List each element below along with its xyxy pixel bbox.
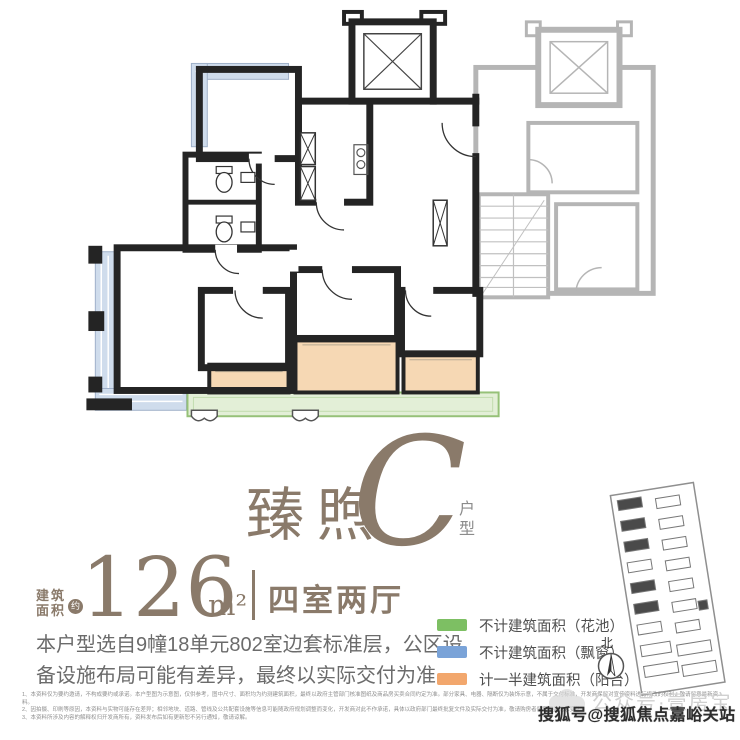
area-label-line2: 面积 <box>36 603 66 618</box>
unit-walls <box>117 69 480 390</box>
site-plan <box>592 476 740 706</box>
area-label: 建筑 面积 <box>36 588 66 618</box>
area-row: 建筑 面积 约 126 m² 四室两厅 <box>36 552 476 622</box>
plan-letter: C <box>352 418 467 568</box>
stairwell-icon <box>479 194 548 297</box>
description: 本户型选自9幢18单元802室边套标准层，公区设 备设施布局可能有差异，最终以实… <box>36 630 463 692</box>
balcony-swatch <box>437 673 467 685</box>
bay-window-swatch <box>437 646 467 658</box>
closet-icons <box>300 133 447 246</box>
area-unit: m² <box>208 588 247 622</box>
description-line2: 备设施布局可能有差异，最终以实际交付为准 <box>36 661 463 692</box>
description-line1: 本户型选自9幢18单元802室边套标准层，公区设 <box>36 630 463 661</box>
room-count: 四室两厅 <box>268 575 404 620</box>
flower-bed-swatch <box>437 619 467 631</box>
plan-type-suffix: 户型 <box>452 500 476 540</box>
watermark-dark: 搜狐号@搜狐焦点嘉峪关站 <box>538 701 736 725</box>
elevator-icon <box>344 12 445 101</box>
kitchen-fixtures <box>354 145 368 175</box>
neighbor-elevator-icon <box>526 22 631 105</box>
floor-plan <box>18 6 678 442</box>
divider <box>252 570 255 620</box>
page: 臻煦 C 户型 建筑 面积 约 126 m² 四室两厅 本户型选自9幢18单元8… <box>0 0 740 740</box>
area-label-line1: 建筑 <box>36 588 66 603</box>
